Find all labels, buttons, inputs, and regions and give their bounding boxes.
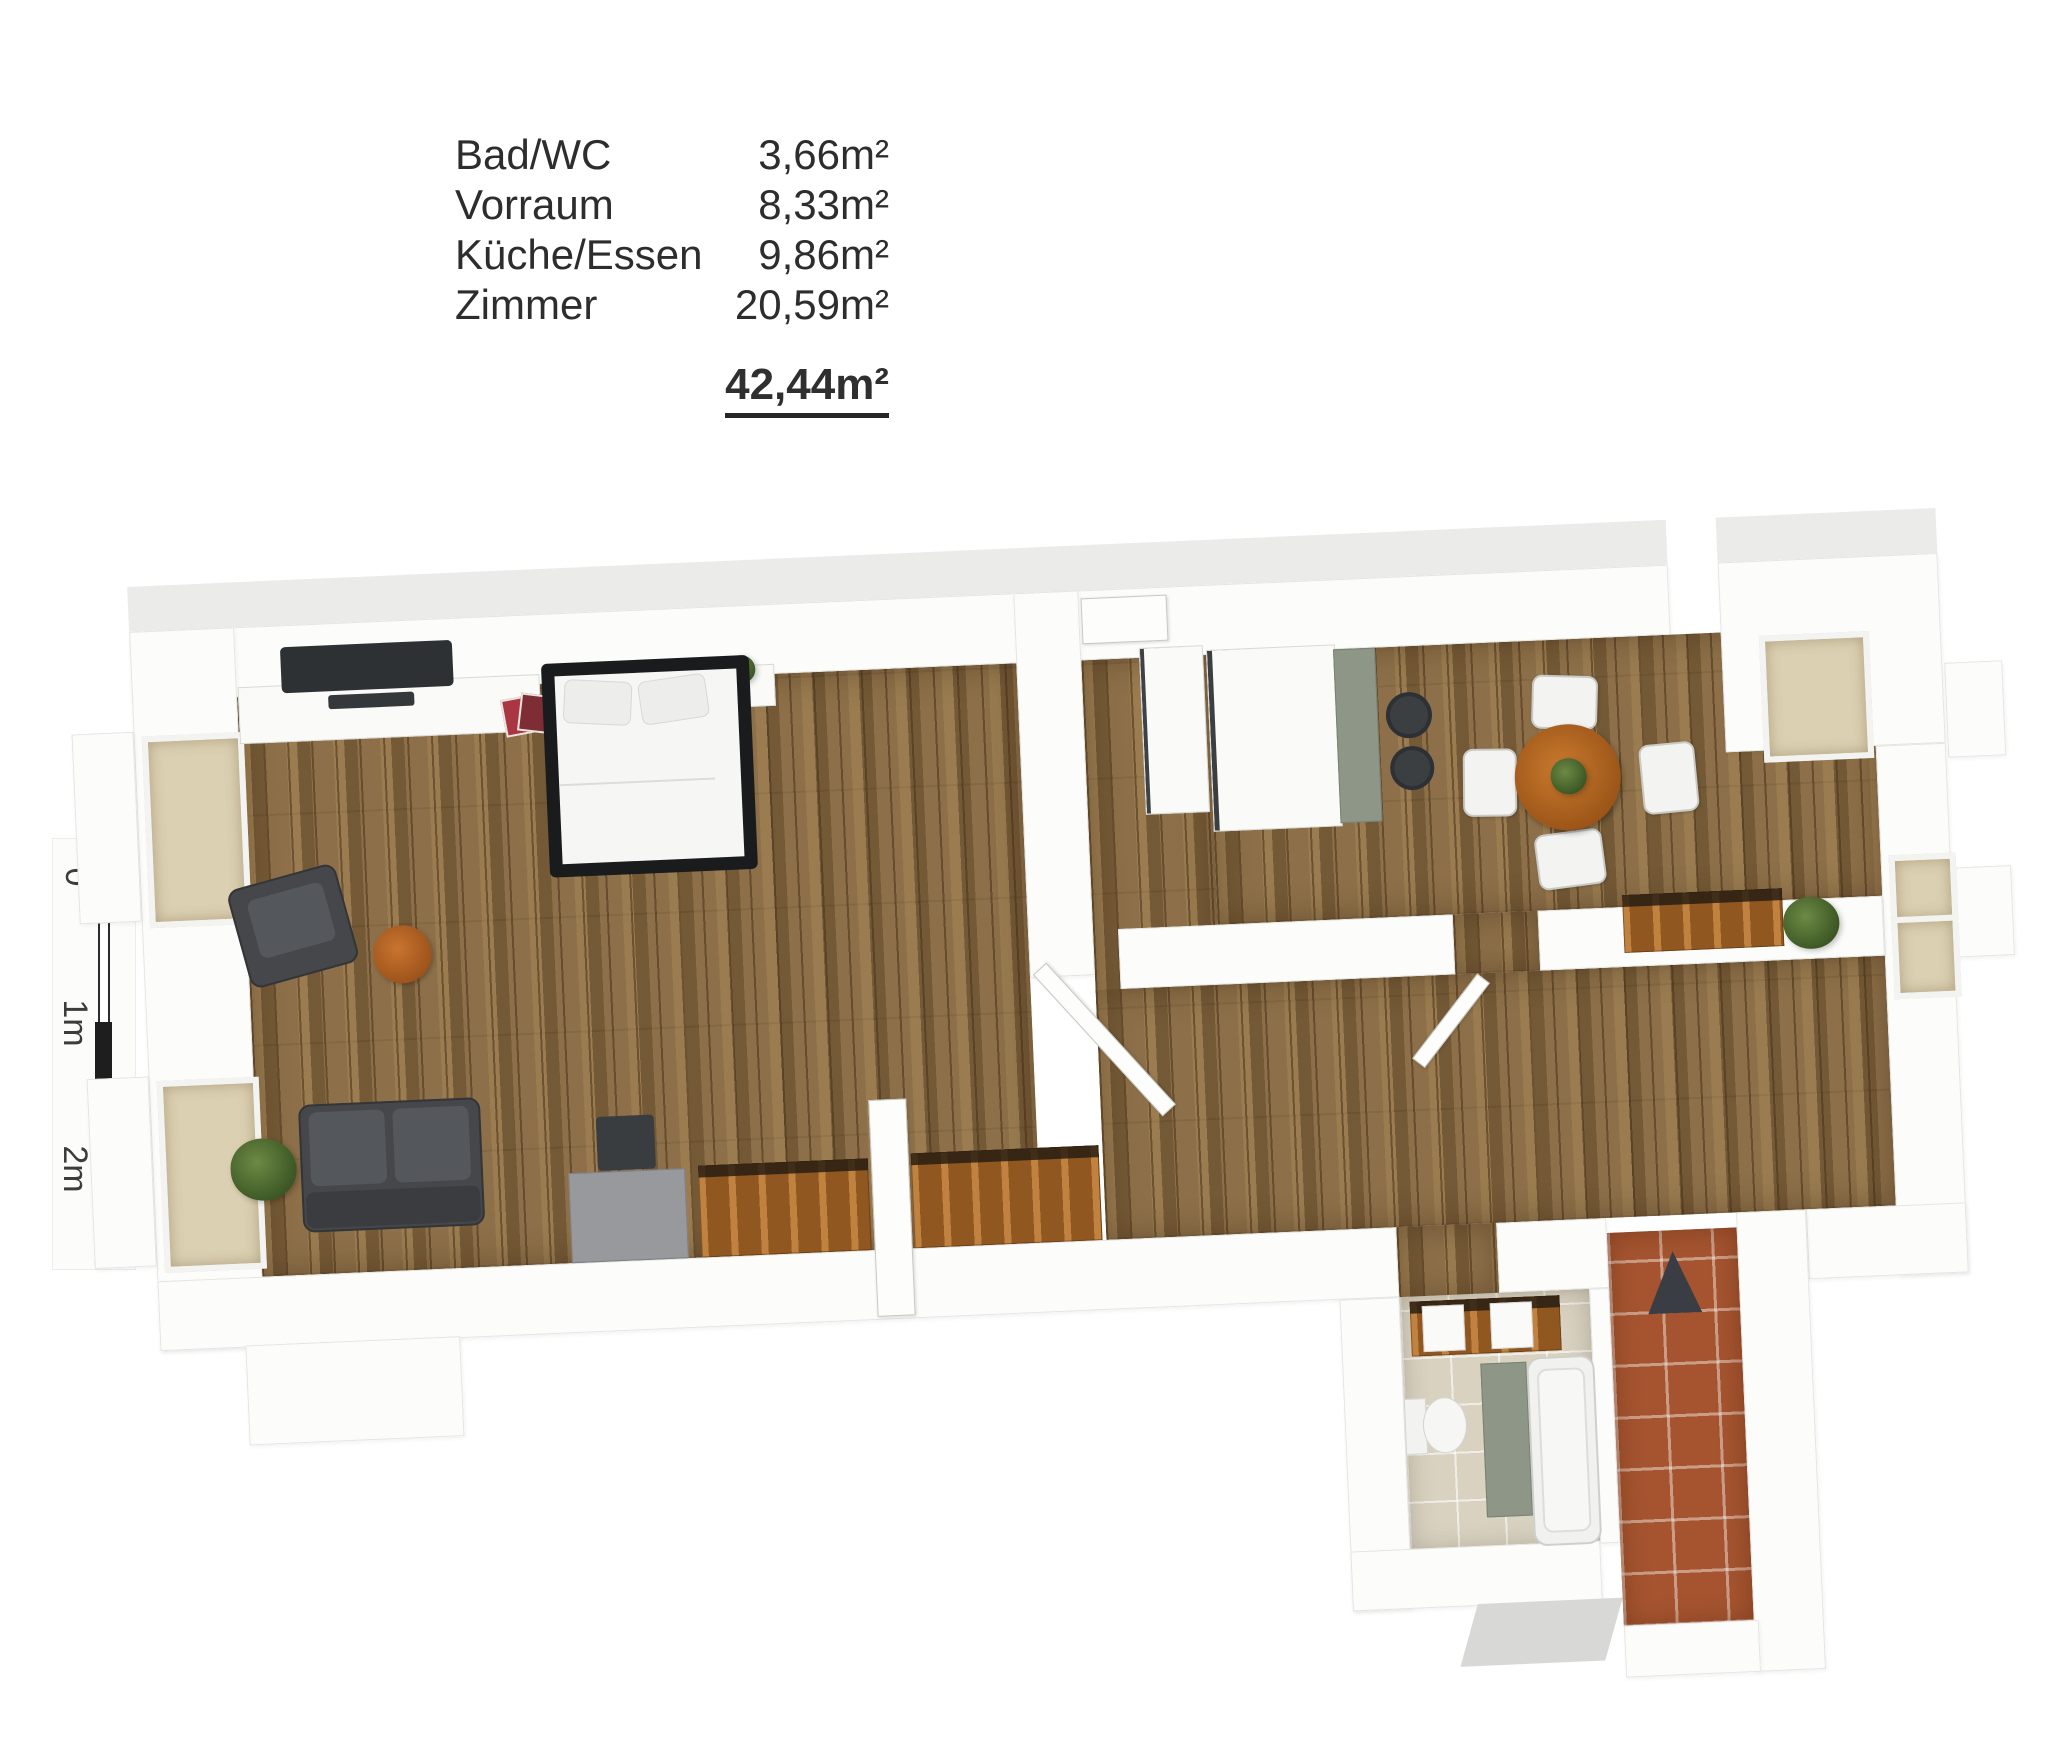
floor-plan-page: Bad/WC 3,66m² Vorraum 8,33m² Küche/Essen…	[0, 0, 2048, 1740]
exterior-wall-block	[245, 1336, 464, 1445]
dining-chair	[1533, 827, 1608, 891]
pillow	[563, 679, 633, 726]
legend-row: Zimmer 20,59m²	[455, 280, 889, 330]
legend-row: Vorraum 8,33m²	[455, 180, 889, 230]
bathtub-basin	[1537, 1367, 1592, 1533]
room-label: Bad/WC	[455, 130, 611, 180]
bottom-wall-mid	[1496, 1218, 1609, 1293]
room-area-value: 3,66m²	[758, 130, 889, 180]
table-plant	[1550, 757, 1588, 795]
armchair-cushion	[246, 881, 337, 960]
dining-chair	[1531, 675, 1598, 731]
sofa-cushion	[392, 1106, 471, 1183]
window-sill-right-lower	[1953, 865, 2015, 957]
sofa	[298, 1097, 485, 1233]
window-sill-left-lower	[87, 1076, 157, 1269]
legend-row: Bad/WC 3,66m²	[455, 130, 889, 180]
hall-closet	[1139, 645, 1210, 815]
room-area-value: 20,59m²	[735, 280, 889, 330]
dresser	[568, 1168, 689, 1263]
total-area: 42,44m²	[455, 360, 889, 418]
bathtub	[1526, 1355, 1602, 1547]
hall-sideboard	[1622, 888, 1784, 953]
area-legend: Bad/WC 3,66m² Vorraum 8,33m² Küche/Essen…	[455, 130, 889, 418]
stair-direction-arrow	[1646, 1250, 1703, 1314]
window-sill-right-top	[1944, 660, 2006, 757]
kitchen-window	[1759, 631, 1874, 763]
dining-chair	[1638, 740, 1700, 815]
bath-doorway-floor	[1396, 1223, 1499, 1299]
kitchen-cabinet	[1333, 648, 1383, 824]
bottom-wall-right	[1806, 1202, 1969, 1279]
hall-wardrobe	[911, 1145, 1103, 1248]
window-sill-left-upper	[72, 732, 142, 925]
bed	[541, 655, 758, 878]
hall-window-lower	[1891, 914, 1962, 999]
entry-step	[1460, 1598, 1622, 1667]
entrance-door	[1081, 595, 1169, 645]
kitchen-counter	[1206, 644, 1343, 831]
stairwell-bottom-wall	[1624, 1620, 1761, 1678]
room-label: Küche/Essen	[455, 230, 703, 280]
bath-sink	[1490, 1301, 1534, 1349]
hallway-floor	[1096, 956, 1896, 1240]
sofa-cushion	[308, 1109, 387, 1186]
tv	[280, 640, 454, 693]
pillow	[637, 672, 711, 726]
bath-sink	[1422, 1304, 1466, 1352]
kitchen-doorway-floor	[1453, 911, 1541, 975]
room-label: Vorraum	[455, 180, 614, 230]
apartment-plan	[123, 409, 2048, 1740]
room-area-value: 8,33m²	[758, 180, 889, 230]
blanket-fold	[559, 777, 715, 786]
room-label: Zimmer	[455, 280, 597, 330]
bath-cabinet	[1480, 1362, 1533, 1518]
dining-chair	[1463, 748, 1518, 816]
sofa-backrest	[306, 1185, 481, 1229]
room-area-value: 9,86m²	[758, 230, 889, 280]
wardrobe	[698, 1158, 872, 1257]
scale-label-1m: 1m	[52, 1000, 98, 1046]
legend-row: Küche/Essen 9,86m²	[455, 230, 889, 280]
dresser-appliance	[596, 1114, 656, 1170]
